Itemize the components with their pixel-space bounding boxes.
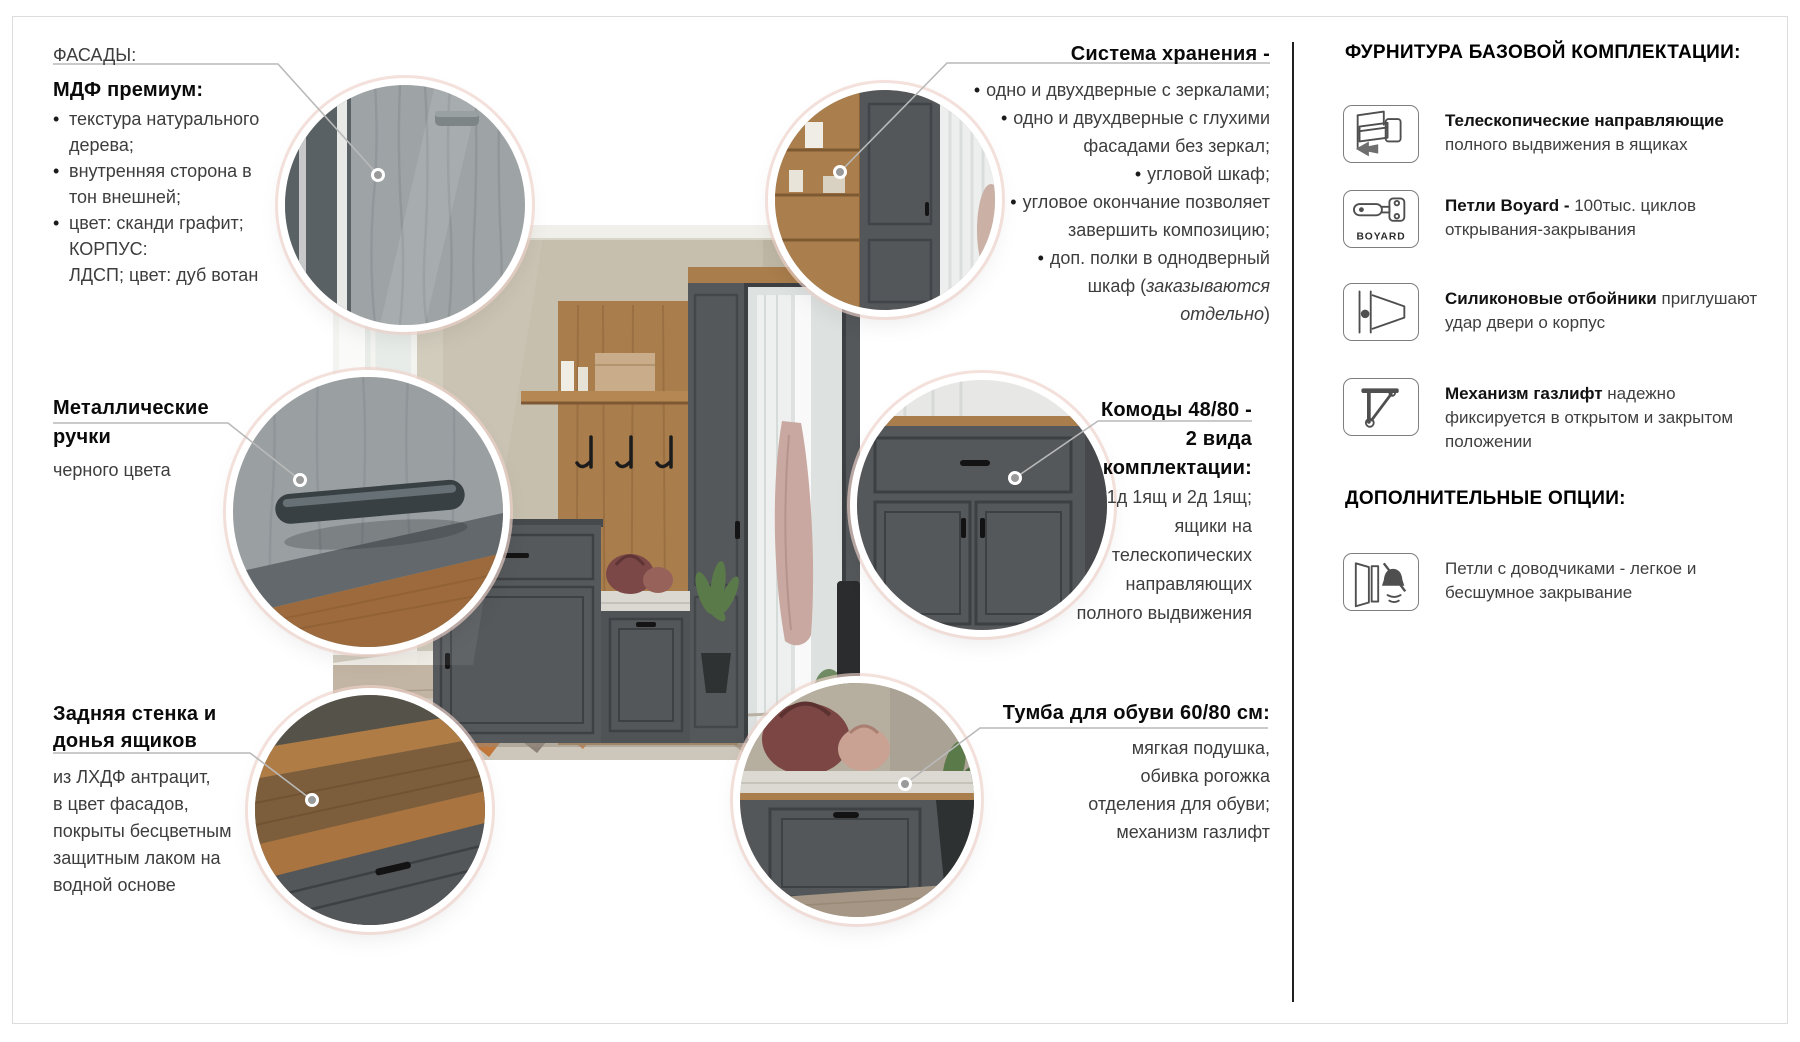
fitting-item-text: Телескопические направляющие полного выд…	[1445, 109, 1775, 157]
sidebar-base-fittings-title: ФУРНИТУРА БАЗОВОЙ КОМПЛЕКТАЦИИ:	[1345, 42, 1741, 64]
callout-shoe-cabinet: Тумба для обуви 60/80 см: мягкая подушка…	[1003, 701, 1270, 846]
fitting-item-boyard-hinges: BOYARD Петли Boyard - 100тыс. циклов отк…	[1343, 190, 1775, 248]
fitting-item-text: Силиконовые отбойники приглушают удар дв…	[1445, 287, 1775, 335]
callout-line: водной основе	[53, 872, 231, 899]
callout-handles-title-line2: ручки	[53, 423, 209, 452]
callout-line: •одно и двухдверные с зеркалами;	[974, 76, 1270, 104]
callout-handles-title-line1: Металлические	[53, 394, 209, 423]
fitting-item-text: Петли с доводчиками - легкое и бесшумное…	[1445, 557, 1775, 605]
callout-handles-subtitle: черного цвета	[53, 456, 209, 484]
chest-of-drawers-closeup-circle	[857, 380, 1107, 630]
callout-line: направляющих	[1077, 570, 1252, 599]
boyard-brand-label: BOYARD	[1356, 232, 1405, 243]
callout-facades-eyebrow: ФАСАДЫ:	[53, 44, 259, 66]
callout-line: КОРПУС:	[53, 236, 259, 262]
callout-line: 1д 1ящ и 2д 1ящ;	[1077, 483, 1252, 512]
callout-line: •одно и двухдверные с глухими	[974, 104, 1270, 132]
callout-line: фасадами без зеркал;	[974, 132, 1270, 160]
fitting-item-text: Петли Boyard - 100тыс. циклов открывания…	[1445, 194, 1775, 242]
callout-line: ЛДСП; цвет: дуб вотан	[53, 262, 259, 288]
silicone-bumper-icon	[1343, 283, 1419, 341]
callout-shoe-title: Тумба для обуви 60/80 см:	[1003, 701, 1270, 725]
callout-line: дерева;	[53, 132, 259, 158]
callout-line: покрыты бесцветным	[53, 818, 231, 845]
callout-chests-title-line: Комоды 48/80 -	[1077, 396, 1252, 425]
callout-backpanel-title-line: Задняя стенка и	[53, 701, 231, 728]
callout-line: мягкая подушка,	[1003, 734, 1270, 762]
callout-backpanel-title-line: донья ящиков	[53, 728, 231, 755]
callout-chests-title-line: комплектации:	[1077, 454, 1252, 483]
callout-chests: Комоды 48/80 - 2 вида комплектации: 1д 1…	[1077, 396, 1252, 628]
fitting-item-text: Механизм газлифт надежно фиксируется в о…	[1445, 382, 1775, 454]
callout-chests-title-line: 2 вида	[1077, 425, 1252, 454]
callout-line: в цвет фасадов,	[53, 791, 231, 818]
callout-line: ящики на	[1077, 512, 1252, 541]
callout-storage-system: Система хранения - •одно и двухдверные с…	[974, 42, 1270, 328]
callout-line: шкаф (заказываются	[974, 272, 1270, 300]
callout-line: механизм газлифт	[1003, 818, 1270, 846]
callout-line: •текстура натурального	[53, 106, 259, 132]
callout-line: полного выдвижения	[1077, 599, 1252, 628]
callout-line: •цвет: сканди графит;	[53, 210, 259, 236]
soft-close-hinge-icon	[1343, 553, 1419, 611]
callout-line: •угловой шкаф;	[974, 160, 1270, 188]
storage-system-closeup-circle	[775, 90, 995, 310]
callout-facades-title: МДФ премиум:	[53, 78, 259, 102]
drawer-slides-icon	[1343, 105, 1419, 163]
callout-line: защитным лаком на	[53, 845, 231, 872]
fitting-item-telescopic-slides: Телескопические направляющие полного выд…	[1343, 105, 1775, 163]
facade-texture-closeup-circle	[285, 85, 525, 325]
callout-line: обивка рогожка	[1003, 762, 1270, 790]
callout-line: завершить композицию;	[974, 216, 1270, 244]
callout-line: •доп. полки в однодверный	[974, 244, 1270, 272]
open-drawer-closeup-circle	[255, 695, 485, 925]
fitting-item-soft-close-hinges: Петли с доводчиками - легкое и бесшумное…	[1343, 553, 1775, 611]
callout-line: телескопических	[1077, 541, 1252, 570]
callout-line: отдельно)	[974, 300, 1270, 328]
callout-metal-handles: Металлические ручки черного цвета	[53, 394, 209, 484]
fitting-item-silicone-bumpers: Силиконовые отбойники приглушают удар дв…	[1343, 283, 1775, 341]
sidebar-options-title: ДОПОЛНИТЕЛЬНЫЕ ОПЦИИ:	[1345, 488, 1626, 510]
callout-line: •внутренняя сторона в	[53, 158, 259, 184]
callout-line: •угловое окончание позволяет	[974, 188, 1270, 216]
gas-lift-icon	[1343, 378, 1419, 436]
metal-handle-closeup-circle	[233, 377, 503, 647]
hallway-furniture-infographic: ФАСАДЫ: МДФ премиум: •текстура натуральн…	[0, 0, 1800, 1042]
callout-line: тон внешней;	[53, 184, 259, 210]
boyard-hinge-icon: BOYARD	[1343, 190, 1419, 248]
sidebar-divider-line	[1292, 42, 1294, 1002]
callout-line: из ЛХДФ антрацит,	[53, 764, 231, 791]
fitting-item-gas-lift: Механизм газлифт надежно фиксируется в о…	[1343, 378, 1775, 454]
callout-storage-title: Система хранения -	[974, 42, 1270, 66]
callout-facades: ФАСАДЫ: МДФ премиум: •текстура натуральн…	[53, 44, 259, 288]
shoe-cabinet-closeup-circle	[740, 683, 974, 917]
callout-line: отделения для обуви;	[1003, 790, 1270, 818]
callout-back-panel: Задняя стенка и донья ящиков из ЛХДФ ант…	[53, 701, 231, 899]
